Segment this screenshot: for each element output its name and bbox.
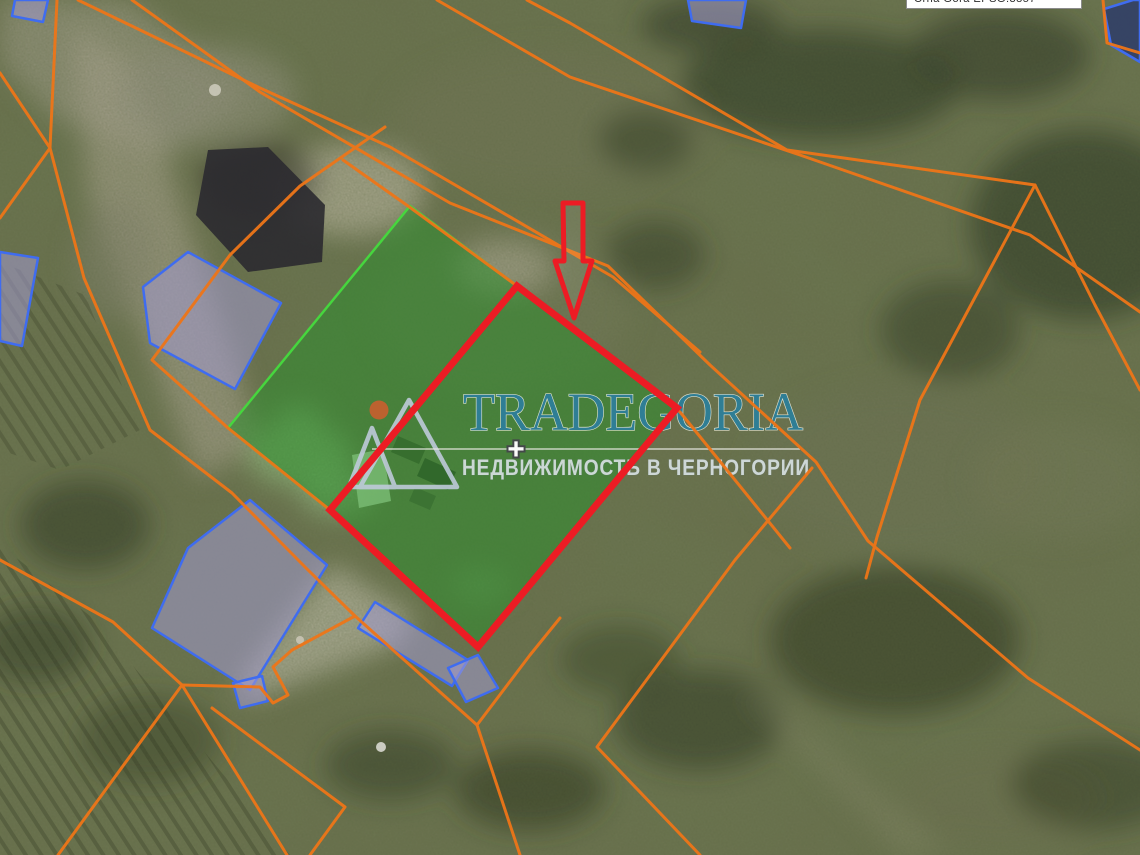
aerial-map-image: TRADEGORIA + НЕДВИЖИМОСТЬ В ЧЕРНОГОРИИ C… (0, 0, 1140, 855)
map-canvas: TRADEGORIA + НЕДВИЖИМОСТЬ В ЧЕРНОГОРИИ (0, 0, 1140, 855)
attribution-box: Crna Gora EPSG:3857 (906, 0, 1082, 9)
attribution-text: Crna Gora EPSG:3857 (907, 0, 1081, 5)
